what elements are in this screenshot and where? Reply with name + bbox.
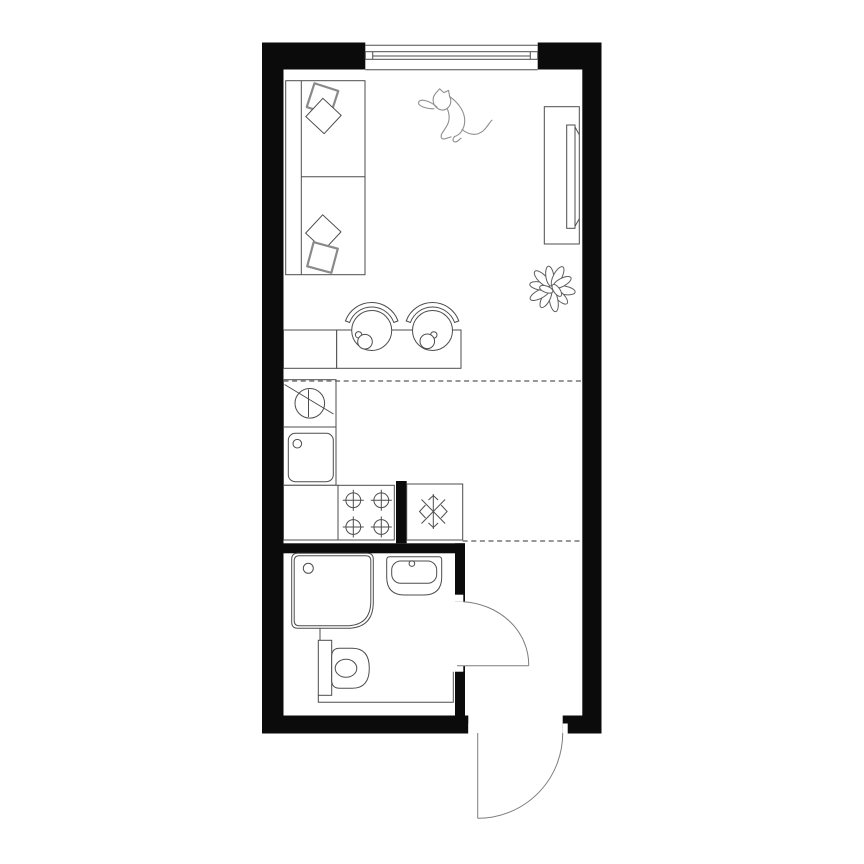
window: [365, 45, 537, 70]
wall-left: [262, 43, 284, 734]
wardrobe: [544, 107, 579, 244]
sofa: [286, 81, 365, 275]
refrigerator: [407, 484, 463, 540]
wardrobe-door-panel: [567, 125, 575, 228]
cat-sketch: [419, 89, 492, 142]
wall-right: [582, 43, 601, 734]
bathroom: [292, 553, 454, 702]
entry-door-jamb-notch-right: [563, 724, 568, 734]
toilet-bowl: [332, 648, 370, 688]
shower-tray-outer: [292, 553, 374, 628]
cup-body: [420, 334, 435, 349]
cat-hind-foot-left: [441, 132, 451, 139]
bathroom-wall-right-lower: [455, 666, 465, 716]
living-area: [286, 81, 580, 313]
wall-bottom-right-segment: [563, 716, 602, 734]
cup-body: [358, 334, 373, 349]
kitchen-partition-stub: [396, 481, 407, 543]
toilet-tank: [318, 640, 331, 695]
bathroom-door-swing-arc: [463, 602, 528, 666]
washing-machine: [284, 380, 337, 427]
kitchen-base-cabinet: [284, 330, 337, 368]
entry-door-jamb-notch-left: [468, 724, 479, 734]
cat-hind-foot-right: [453, 137, 461, 142]
fridge-body: [407, 484, 463, 540]
bathroom-door-jamb-notch-lower: [455, 666, 463, 672]
entry-door-swing-arc: [478, 733, 563, 818]
floor-plan-canvas: [0, 0, 864, 864]
entry-door: [478, 733, 563, 818]
toilet: [318, 640, 369, 695]
cat-belly: [443, 108, 449, 131]
stove: [338, 485, 394, 540]
bathroom-wall-top: [284, 543, 466, 553]
washbasin: [387, 557, 442, 595]
potted-plant: [528, 265, 576, 313]
shower: [292, 553, 374, 640]
washer-box: [284, 380, 337, 427]
cat-tail: [462, 120, 492, 134]
kitchen-sink-unit: [284, 427, 337, 485]
floor-plan-page: [0, 0, 864, 864]
wall-top-left-segment: [262, 43, 365, 70]
sofa-pillow-bottom-front: [307, 242, 338, 273]
cat-head: [433, 89, 451, 110]
bathroom-wall-right-upper: [455, 543, 465, 601]
bathroom-door: [457, 602, 529, 666]
bathroom-door-jamb-notch-upper: [455, 595, 463, 602]
doors: [457, 602, 563, 819]
kitchen: [284, 303, 463, 540]
wall-bottom-left-segment: [262, 716, 468, 734]
kitchen-corner-cabinet: [284, 485, 339, 540]
stove-top: [338, 485, 394, 540]
